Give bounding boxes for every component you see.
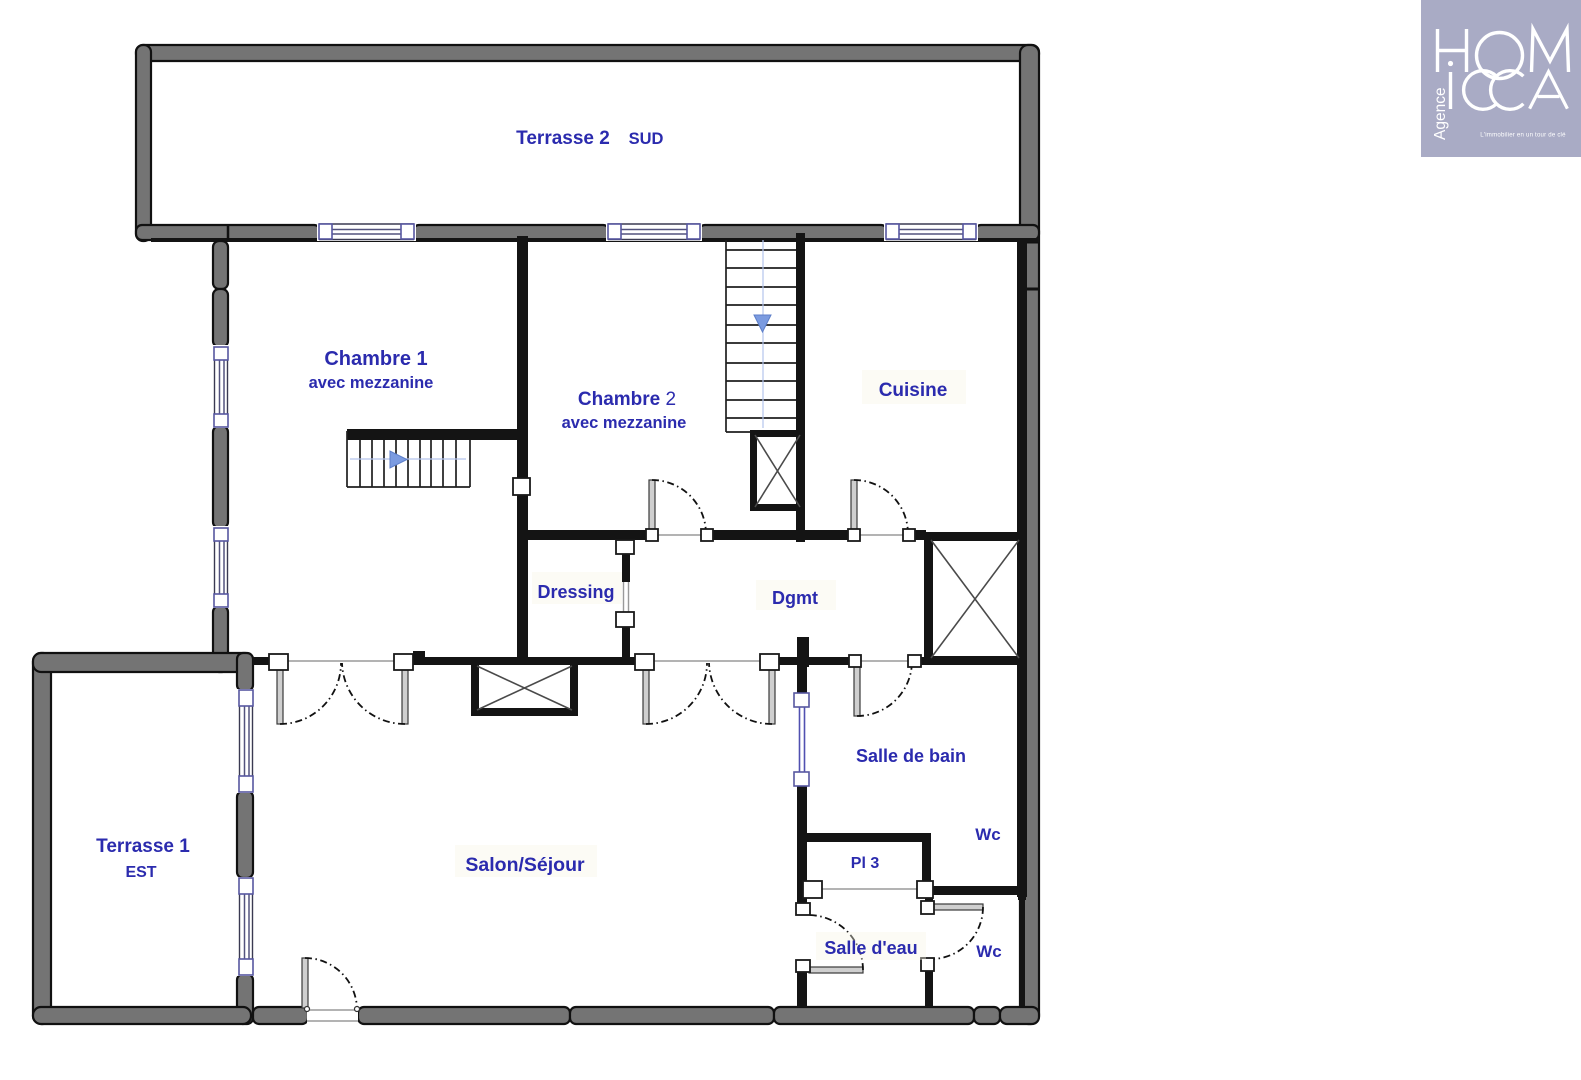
svg-text:Wc: Wc [975,825,1001,844]
svg-text:Cuisine: Cuisine [879,380,948,401]
svg-text:Salle de bain: Salle de bain [856,746,966,766]
svg-text:Terrasse 1: Terrasse 1 [96,836,190,857]
svg-text:avec mezzanine: avec mezzanine [562,414,687,432]
svg-text:Pl 3: Pl 3 [851,855,880,872]
svg-text:Wc: Wc [976,942,1002,961]
svg-text:Agence: Agence [1432,87,1449,140]
svg-text:Salle d'eau: Salle d'eau [824,938,917,958]
svg-text:L'immobilier en un tour de clé: L'immobilier en un tour de clé [1480,132,1566,139]
svg-text:Chambre 2: Chambre 2 [578,389,676,410]
svg-text:SUD: SUD [629,130,664,148]
svg-text:Terrasse 2: Terrasse 2 [516,128,610,149]
svg-text:EST: EST [125,864,156,881]
svg-text:Salon/Séjour: Salon/Séjour [465,854,585,876]
svg-text:avec mezzanine: avec mezzanine [309,374,434,392]
svg-text:Dgmt: Dgmt [772,588,818,608]
svg-text:Chambre 1: Chambre 1 [324,348,427,370]
svg-text:Dressing: Dressing [537,582,614,602]
